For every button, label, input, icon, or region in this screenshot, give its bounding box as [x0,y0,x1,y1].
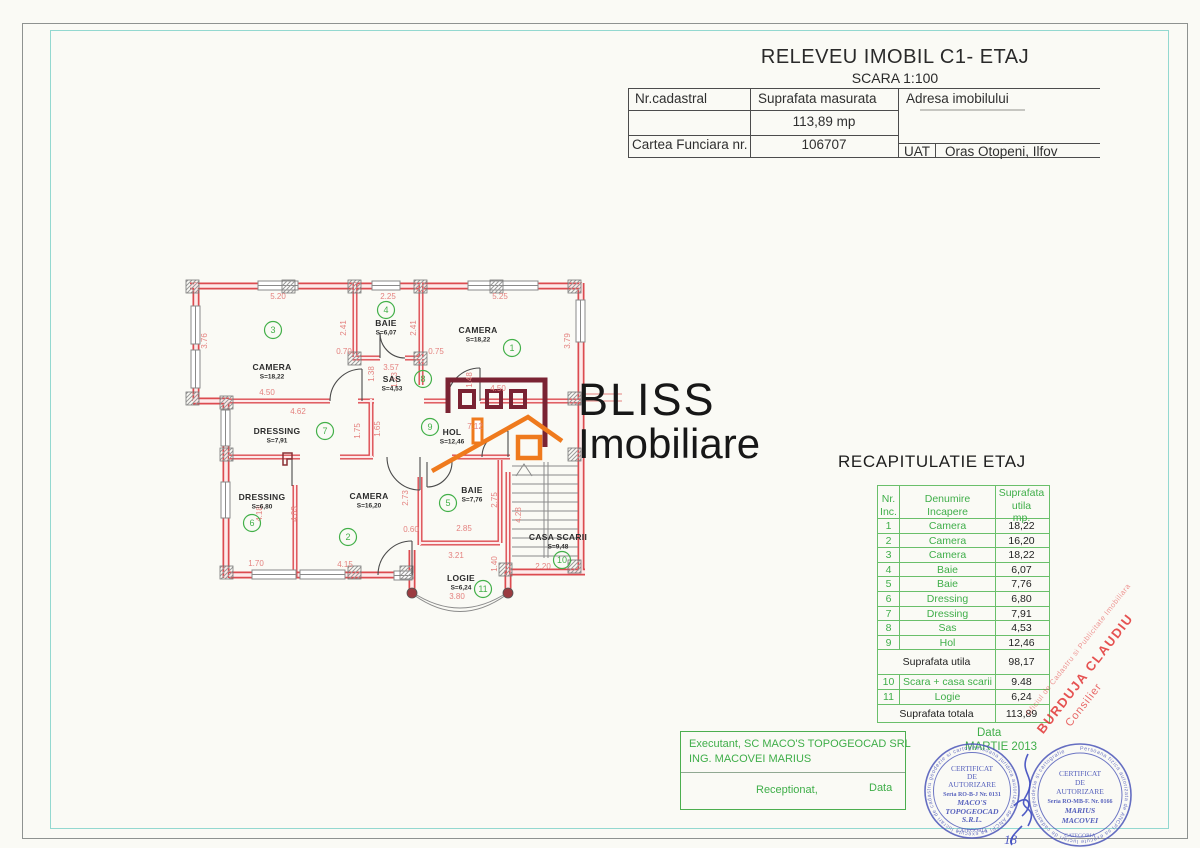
room-label: LOGIE [447,573,475,583]
executant-box: Executant, SC MACO'S TOPOGEOCAD SRL ING.… [680,731,906,810]
stamp-text-line: DE [1075,778,1085,787]
stamp-category: CATEGORIA [1064,833,1095,839]
room-label: CAMERA [458,325,497,335]
room-label: BAIE [375,318,397,328]
stamp-text-line: S.R.L. [962,815,982,824]
room-label: S=6,07 [376,330,397,337]
dimension-label: 4.15 [337,560,353,569]
room-label: 4 [383,305,388,315]
dimension-label: 2.75 [490,492,499,508]
recap-cell: 4 [878,563,900,578]
stamp-category: CATEGORIA [956,828,987,834]
stamp-text-line: MACO'S [956,798,987,807]
document-page: RELEVEU IMOBIL C1- ETAJ SCARA 1:100 Nr.c… [0,0,1200,848]
room-label: 8 [420,374,425,384]
dimension-label: 1.70 [248,559,264,568]
recap-cell: Hol [900,636,996,651]
room-label: 3 [270,325,275,335]
recap-cell: Dressing [900,607,996,622]
dimension-label: 4.50 [490,384,506,393]
room-label: DRESSING [254,426,301,436]
room-label: 7 [322,426,327,436]
recap-cell: Camera [900,519,996,534]
dimension-label: 2.41 [339,320,348,336]
room-label: CAMERA [349,491,388,501]
dimension-label: 2.73 [401,490,410,506]
stamp-text-line: MACOVEI [1061,816,1099,825]
room-label: S=12,46 [440,439,465,446]
receptionat-label: Receptionat, [756,784,818,796]
stamp-text-line: MARIUS [1064,806,1096,815]
dimension-label: 1.38 [367,366,376,382]
dimension-label: 3.21 [448,551,464,560]
room-label: SAS [383,374,401,384]
stamp-text-line: CERTIFICAT [1059,769,1101,778]
recap-cell: Scara + casa scarii [900,675,996,690]
recap-cell: 11 [878,690,900,705]
dimension-label: 4.62 [290,407,306,416]
dimension-label: 2.25 [380,292,396,301]
dimension-label: 3.76 [200,333,209,349]
stamp-text-line: AUTORIZARE [948,780,996,789]
room-label: S=18,22 [260,374,285,381]
room-label: HOL [443,427,462,437]
logo-line2: Imobiliare [578,423,760,465]
recap-cell: Sas [900,621,996,636]
room-label: 11 [478,584,487,594]
recap-cell: 6,07 [996,563,1047,578]
recap-cell: 7,76 [996,577,1047,592]
logie-column [407,588,417,598]
dimension-label: 4.03 [290,506,299,522]
dimension-label: 3.57 [383,363,399,372]
executant-line1: Executant, SC MACO'S TOPOGEOCAD SRL [689,738,911,750]
room-label: 1 [509,343,514,353]
recap-cell: 9 [878,636,900,651]
logo-line1: BLISS [578,377,760,422]
door-swings [292,333,508,575]
room-label: 9 [427,422,432,432]
recap-cell: Suprafata utila [878,650,996,674]
room-label: DRESSING [239,492,286,502]
recap-cell: Camera [900,548,996,563]
dimension-label: 0.60 [403,525,419,534]
dimension-label: 0.70 [336,347,352,356]
logie-column [503,588,513,598]
dimension-label: 5.25 [492,292,508,301]
recap-cell: 6 [878,592,900,607]
room-label: 5 [445,498,450,508]
recap-cell: 9.48 [996,675,1047,690]
dimension-label: 1.75 [353,423,362,439]
dimension-label: 4.50 [259,388,275,397]
data-label: Data [869,782,892,794]
room-label: 2 [345,532,350,542]
room-label: S=6,24 [451,585,472,592]
signature: 18 [992,748,1062,848]
plan-labels: 5.202.255.253.762.412.413.790.700.753.57… [200,292,587,601]
recap-cell: 16,20 [996,534,1047,549]
recap-cell: 8 [878,621,900,636]
room-label: S=7,76 [462,497,483,504]
recap-cell: Baie [900,577,996,592]
room-label: S=18,22 [466,337,491,344]
dimension-label: 3.79 [563,333,572,349]
recap-cell: 7,91 [996,607,1047,622]
recap-cell: 10 [878,675,900,690]
room-label: S=6,80 [252,504,273,511]
dimension-label: 2.85 [456,524,472,533]
dimension-label: 4.28 [514,507,523,523]
room-label: S=7,91 [267,438,288,445]
recap-cell: 18,22 [996,548,1047,563]
dimension-label: 2.41 [409,320,418,336]
room-label: 6 [249,518,254,528]
recap-cell: 1 [878,519,900,534]
executant-divider [681,772,905,773]
recap-title: RECAPITULATIE ETAJ [838,452,1026,472]
dimension-label: 1.48 [465,372,474,388]
recap-table: Nr.Inc.DenumireIncapereSuprafatautilamp.… [877,485,1050,723]
recap-cell: 98,17 [996,650,1047,674]
recap-cell: Suprafata totala [878,705,996,722]
recap-cell: 12,46 [996,636,1047,651]
recap-cell: 7 [878,607,900,622]
room-label: S=4,53 [382,386,403,393]
dimension-label: 1.40 [490,556,499,572]
signature-number: 18 [1004,832,1018,847]
dimension-label: 0.75 [428,347,444,356]
room-label: CAMERA [252,362,291,372]
room-label: 10 [557,555,567,565]
executant-line2: ING. MACOVEI MARIUS [689,753,811,765]
room-label: BAIE [461,485,483,495]
dimension-label: 5.20 [270,292,286,301]
dimension-label: 1.65 [373,421,382,437]
recap-cell: Baie [900,563,996,578]
room-label: CASA SCARII [529,532,587,542]
dimension-label: 3.80 [449,592,465,601]
recap-cell: 2 [878,534,900,549]
room-label: S=9,48 [548,544,569,551]
bliss-logo-text: BLISS Imobiliare [578,377,760,465]
recap-cell: Dressing [900,592,996,607]
recap-cell: 18,22 [996,519,1047,534]
recap-cell: 3 [878,548,900,563]
dimension-label: 7.12 [467,422,483,431]
stamp-text-line: AUTORIZARE [1056,787,1104,796]
room-label: S=16,20 [357,503,382,510]
date-label: Data [977,726,1037,740]
recap-cell: 4,53 [996,621,1047,636]
recap-cell: Logie [900,690,996,705]
recap-cell: 5 [878,577,900,592]
dimension-label: 2.20 [535,562,551,571]
recap-cell: 6,80 [996,592,1047,607]
recap-cell: Camera [900,534,996,549]
